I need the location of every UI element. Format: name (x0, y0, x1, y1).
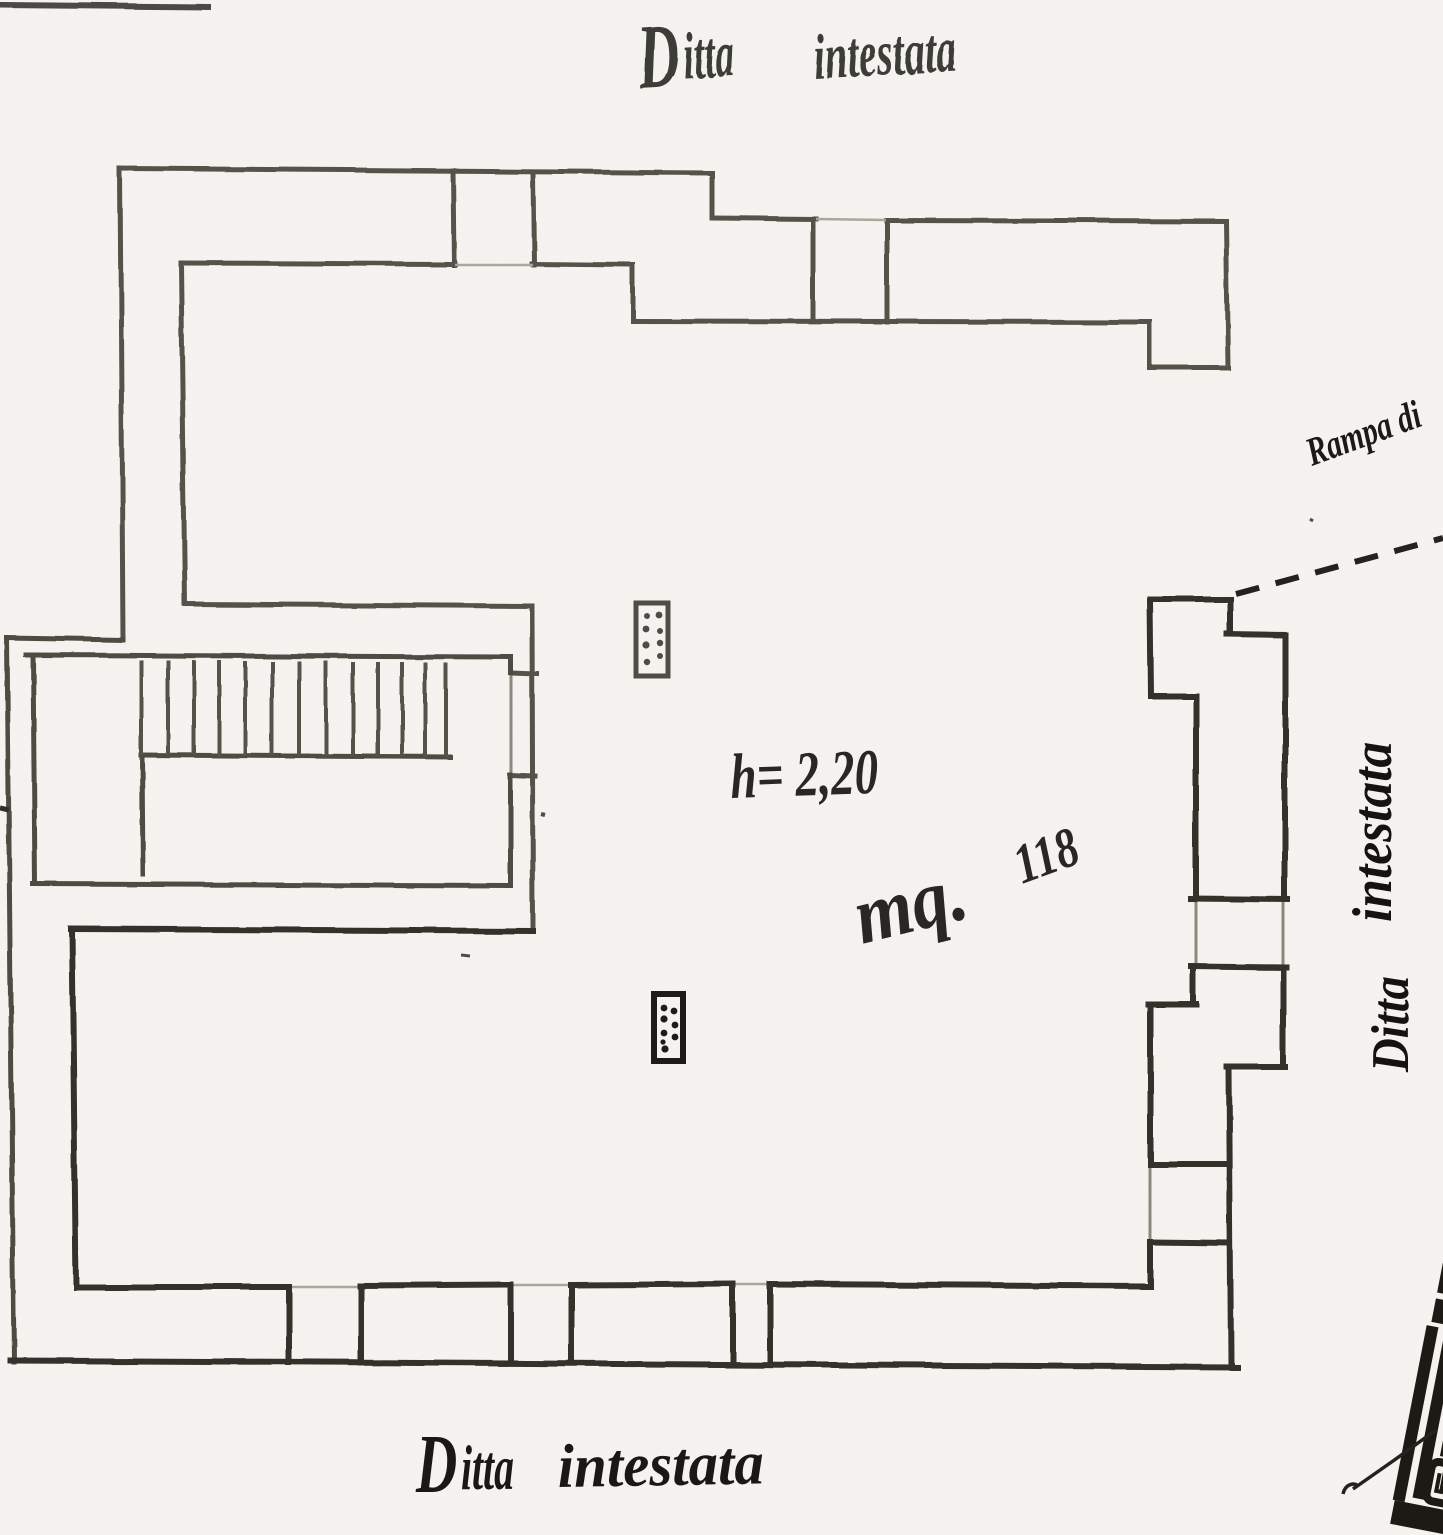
svg-text:intestata: intestata (1341, 742, 1403, 922)
svg-text:itta: itta (681, 17, 736, 93)
svg-text:D: D (634, 4, 683, 109)
svg-text:itta: itta (461, 1433, 514, 1504)
svg-text:h= 2,20: h= 2,20 (729, 737, 879, 813)
svg-text:intestata: intestata (557, 1429, 764, 1501)
svg-text:Ditta: Ditta (1361, 976, 1419, 1073)
svg-text:intestata: intestata (811, 13, 958, 92)
svg-text:D: D (415, 1417, 457, 1511)
